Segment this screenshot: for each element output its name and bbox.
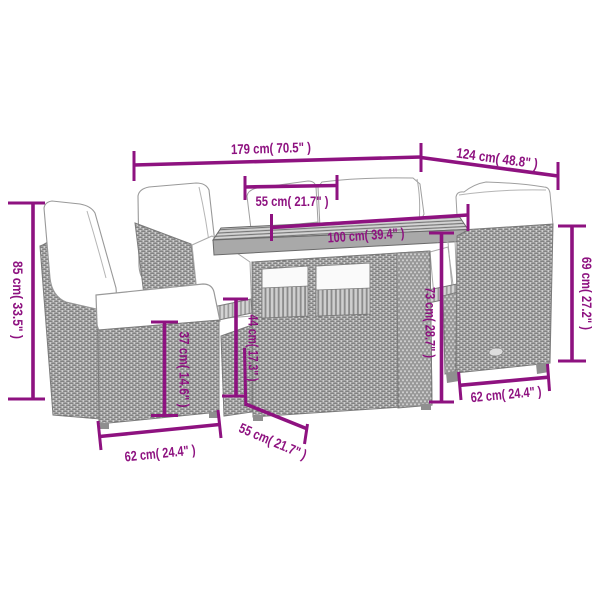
svg-text:37 cm( 14.6" ): 37 cm( 14.6" ) bbox=[177, 332, 193, 408]
svg-text:69 cm( 27.2" ): 69 cm( 27.2" ) bbox=[579, 257, 595, 330]
svg-text:179 cm( 70.5" ): 179 cm( 70.5" ) bbox=[231, 139, 311, 157]
svg-text:55 cm( 21.7" ): 55 cm( 21.7" ) bbox=[256, 193, 329, 209]
svg-text:85 cm( 33.5" ): 85 cm( 33.5" ) bbox=[10, 261, 26, 339]
svg-text:44 cm( 17.3" ): 44 cm( 17.3" ) bbox=[246, 315, 262, 382]
svg-text:73 cm( 28.7" ): 73 cm( 28.7" ) bbox=[423, 287, 439, 358]
